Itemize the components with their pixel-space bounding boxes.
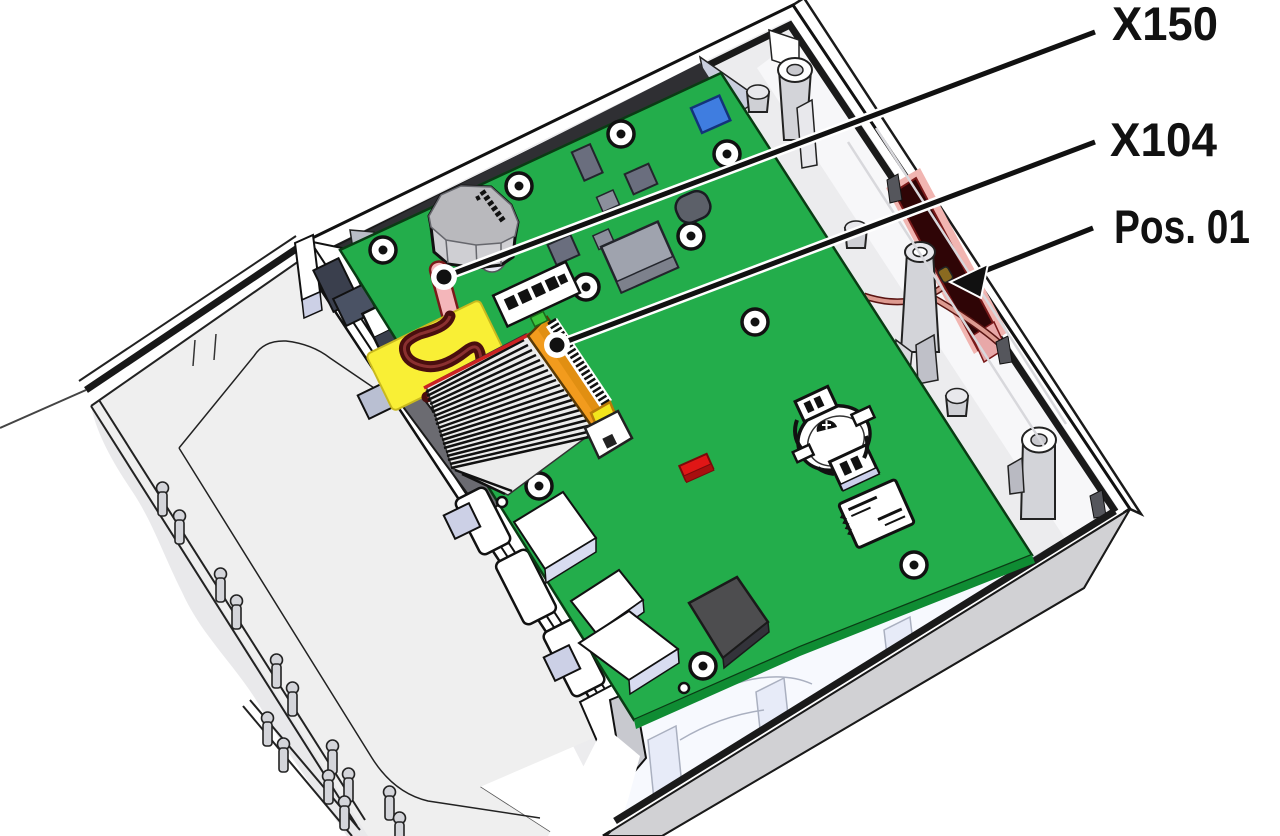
svg-text:Pos. 01: Pos. 01 [1114, 200, 1250, 253]
svg-text:X150: X150 [1112, 0, 1218, 50]
svg-text:X104: X104 [1110, 113, 1217, 166]
